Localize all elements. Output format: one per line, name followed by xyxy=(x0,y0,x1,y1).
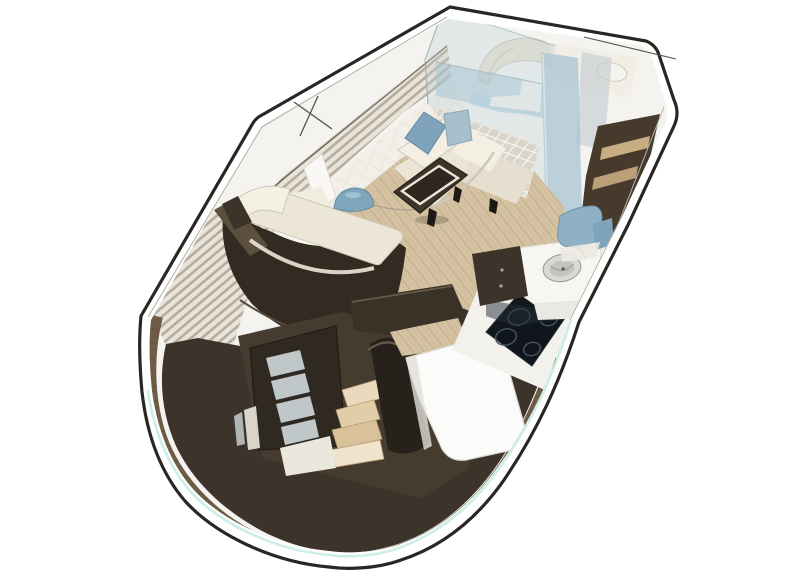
cabinet-knob-2 xyxy=(499,284,502,287)
cabinet-knob xyxy=(500,268,503,271)
render-canvas xyxy=(0,0,811,573)
yacht-floorplan-render xyxy=(0,0,811,573)
bowl-highlight xyxy=(345,192,361,198)
galley-cabinet xyxy=(472,246,528,306)
throw-pillow-gray xyxy=(444,110,472,146)
